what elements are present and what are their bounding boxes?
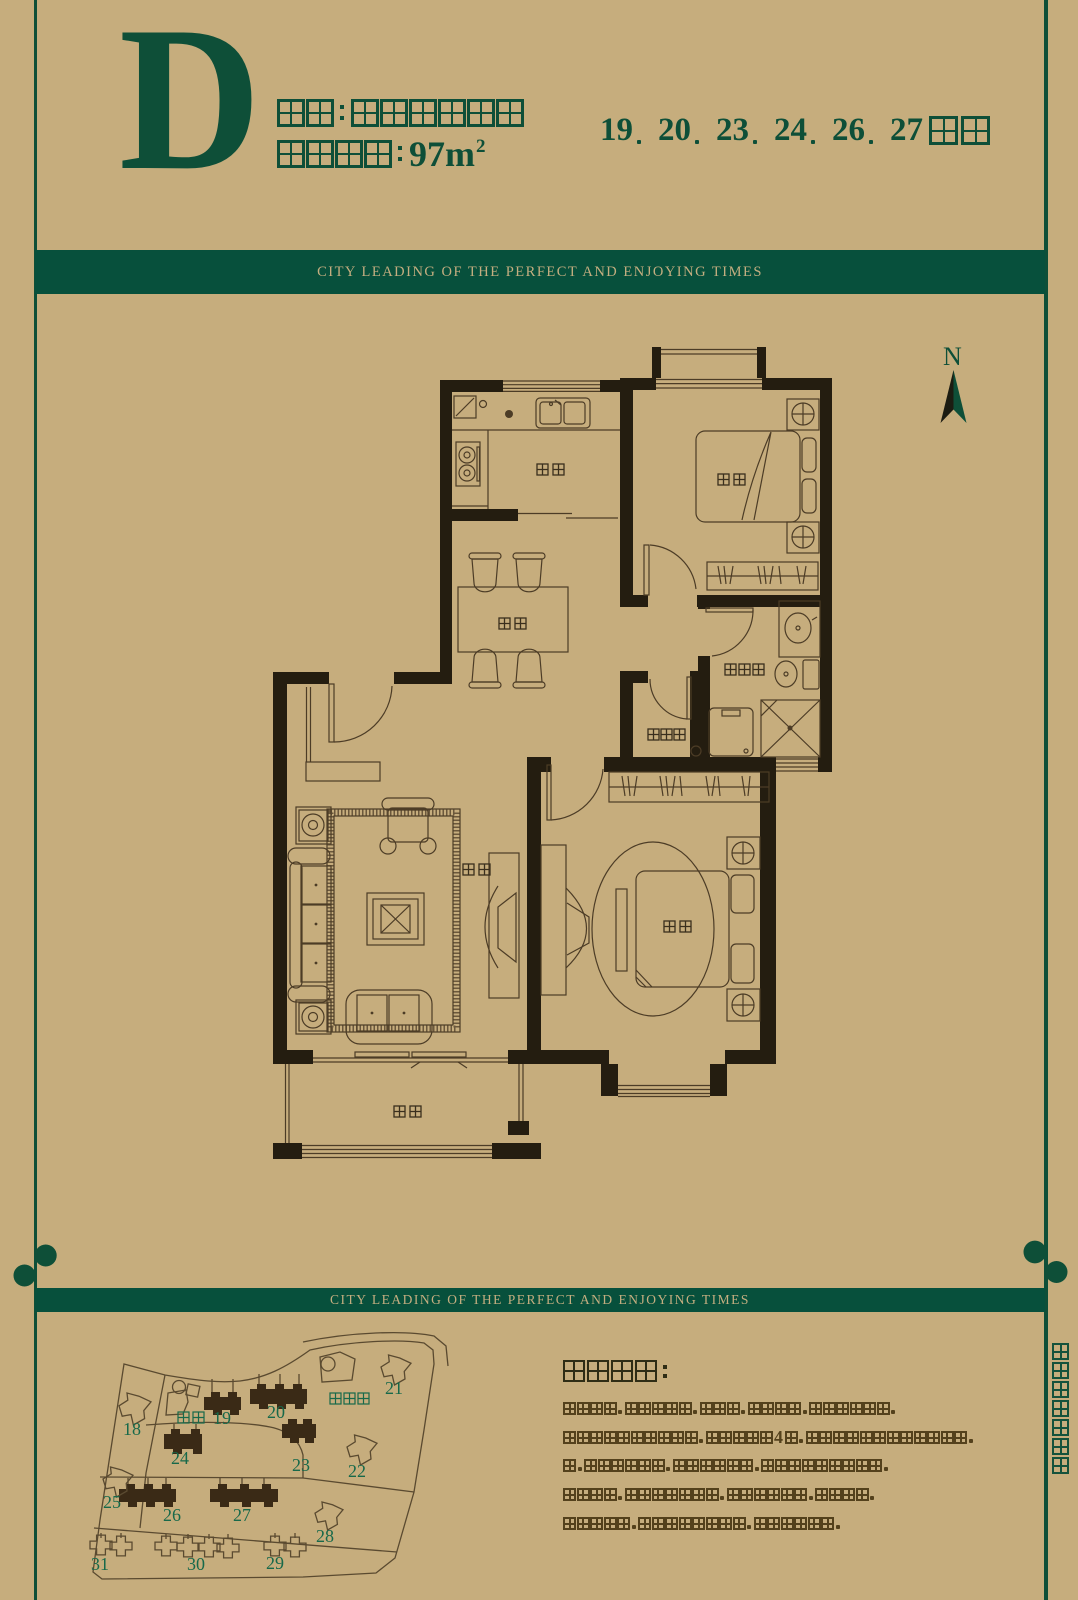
svg-text:24: 24 bbox=[171, 1448, 189, 1468]
svg-text:27: 27 bbox=[233, 1505, 251, 1525]
svg-text:20: 20 bbox=[267, 1402, 285, 1422]
svg-text:31: 31 bbox=[91, 1554, 109, 1574]
svg-text:30: 30 bbox=[187, 1554, 205, 1574]
svg-text:23: 23 bbox=[292, 1455, 310, 1475]
svg-text:25: 25 bbox=[103, 1492, 121, 1512]
svg-text:29: 29 bbox=[266, 1553, 284, 1573]
svg-text:19: 19 bbox=[213, 1408, 231, 1428]
svg-text:N: N bbox=[943, 342, 962, 371]
svg-text:26: 26 bbox=[163, 1505, 181, 1525]
svg-text:28: 28 bbox=[316, 1526, 334, 1546]
svg-text:21: 21 bbox=[385, 1378, 403, 1398]
svg-text:22: 22 bbox=[348, 1461, 366, 1481]
svg-text:18: 18 bbox=[123, 1419, 141, 1439]
